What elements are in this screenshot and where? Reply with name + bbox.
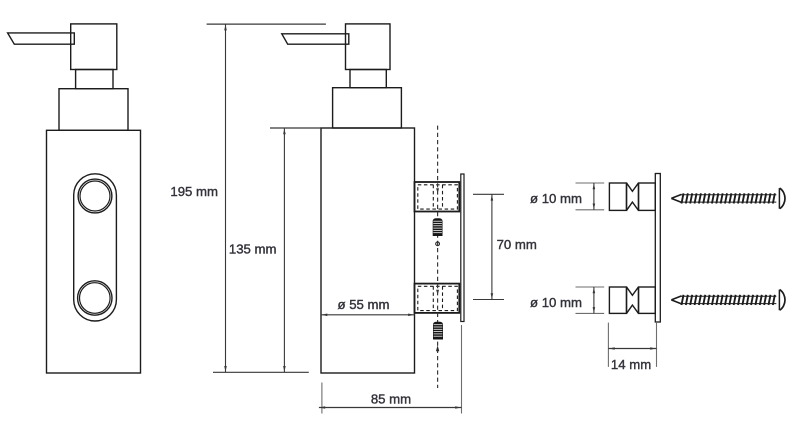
svg-text:ø 10 mm: ø 10 mm — [530, 191, 582, 206]
svg-text:ø 10 mm: ø 10 mm — [530, 295, 582, 310]
svg-text:ø 55 mm: ø 55 mm — [337, 297, 389, 312]
svg-text:135 mm: 135 mm — [229, 241, 277, 256]
svg-text:70 mm: 70 mm — [497, 237, 537, 252]
svg-text:14 mm: 14 mm — [611, 357, 651, 372]
svg-text:85 mm: 85 mm — [371, 391, 411, 406]
svg-text:195 mm: 195 mm — [170, 184, 218, 199]
